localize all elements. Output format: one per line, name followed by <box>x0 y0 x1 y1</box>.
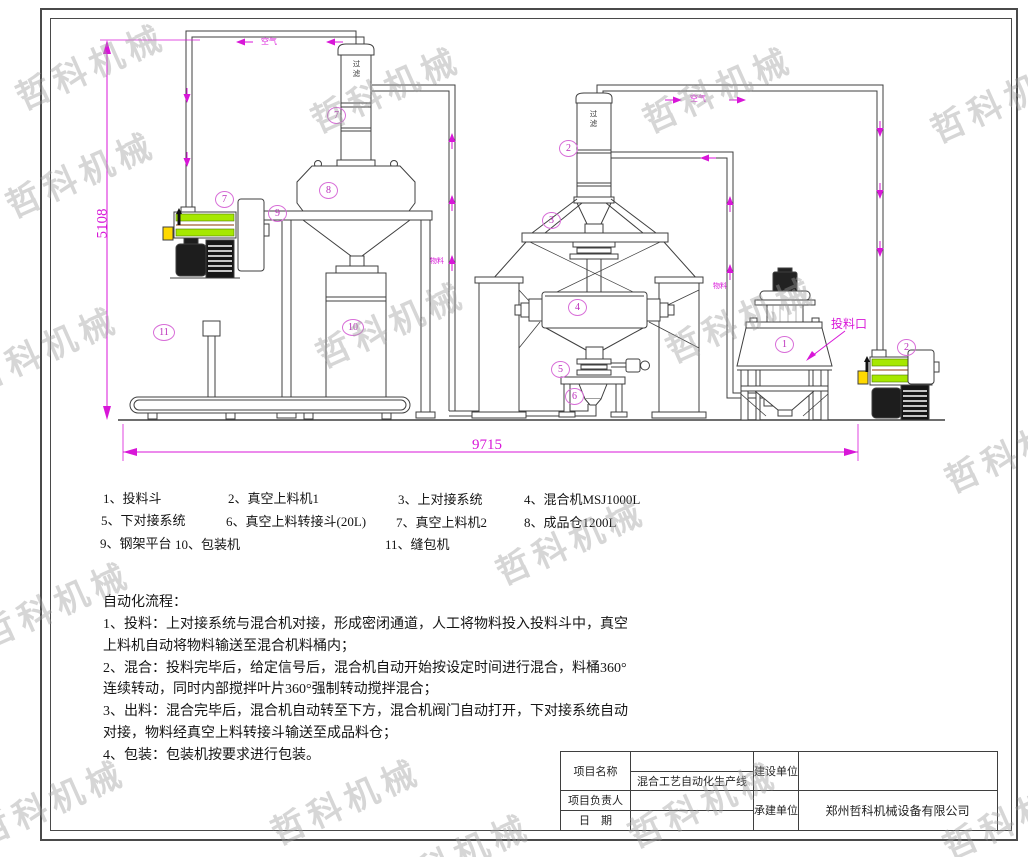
builder-label: 建设单位 <box>754 752 798 790</box>
lower-docking <box>577 359 650 375</box>
legend-item-2: 2、真空上料机1 <box>228 488 319 507</box>
date-value <box>630 810 754 830</box>
project-manager-value <box>630 790 754 810</box>
drawing-sheet: 哲科机械 哲科机械 哲科机械 哲科机械 哲科机械 哲科机械 哲科机械 哲科机械 … <box>0 0 1028 857</box>
project-name-value: 混合工艺自动化生产线 <box>630 771 754 790</box>
legend-item-1: 1、投料斗 <box>103 488 162 507</box>
finished-bin <box>297 161 415 212</box>
filter-label-middle: 过滤 <box>588 110 599 129</box>
process-title: 自动化流程： <box>103 591 187 611</box>
dimension-height: 5108 <box>95 209 112 239</box>
contractor-value: 郑州哲科机械设备有限公司 <box>798 790 997 830</box>
callout-2-vacuum-feeder-1: 2 <box>559 140 578 157</box>
vacuum-feeder-2-blower <box>163 199 269 278</box>
callout-1-feed-hopper: 1 <box>775 336 794 353</box>
project-name-label: 项目名称 <box>561 752 630 790</box>
legend-item-9: 9、钢架平台 <box>100 533 172 552</box>
vacuum-feeder-1-blower <box>858 350 939 420</box>
sewing-machine <box>203 321 220 398</box>
project-manager-label: 项目负责人 <box>561 790 630 810</box>
air-flow-label-left: 空气 <box>261 36 277 47</box>
packaging-machine <box>326 266 386 412</box>
process-line-2: 上料机自动将物料输送至混合机料桶内； <box>103 635 355 655</box>
process-line-3: 2、混合：投料完毕后，给定信号后，混合机自动开始按设定时间进行混合，料桶360° <box>103 657 627 677</box>
process-line-4: 连续转动，同时内部搅拌叶片360°强制转动搅拌混合； <box>103 678 438 698</box>
callout-7-vacuum-feeder-2: 7 <box>327 107 346 124</box>
callout-2-vacuum-feeder-1b: 2 <box>897 339 916 356</box>
legend-item-8: 8、成品仓1200L <box>524 512 616 531</box>
callout-3-upper-docking: 3 <box>542 212 561 229</box>
air-flow-label-right: 空气 <box>690 93 706 104</box>
legend-item-4: 4、混合机MSJ1000L <box>524 489 640 508</box>
legend-item-11: 11、缝包机 <box>385 534 450 553</box>
callout-4-mixer: 4 <box>568 299 587 316</box>
title-block: 项目名称 混合工艺自动化生产线 项目负责人 日 期 建设单位 承建单位 郑州哲科… <box>560 751 998 831</box>
callout-10-packaging: 10 <box>342 319 364 336</box>
legend-item-5: 5、下对接系统 <box>101 510 186 529</box>
legend-item-3: 3、上对接系统 <box>398 489 483 508</box>
legend-item-7: 7、真空上料机2 <box>396 512 487 531</box>
filter-label-left: 过滤 <box>351 60 362 79</box>
callout-7-vacuum-feeder-2b: 7 <box>215 191 234 208</box>
legend-item-6: 6、真空上料转接斗(20L) <box>226 511 366 530</box>
callout-5-lower-docking: 5 <box>551 361 570 378</box>
feed-port-label: 投料口 <box>831 315 867 332</box>
legend-item-10: 10、包装机 <box>175 534 240 553</box>
material-flow-label-left: 物料 <box>430 256 444 266</box>
mixer-drum <box>515 292 674 359</box>
process-line-5: 3、出料：混合完毕后，混合机自动转至下方，混合机阀门自动打开，下对接系统自动 <box>103 700 628 720</box>
process-line-7: 4、包装：包装机按要求进行包装。 <box>103 744 320 764</box>
callout-11-bag-sewing: 11 <box>153 324 175 341</box>
material-flow-label-right: 物料 <box>713 281 727 291</box>
callout-8-finished-bin: 8 <box>319 182 338 199</box>
dimension-width: 9715 <box>472 437 502 454</box>
date-label: 日 期 <box>561 810 630 830</box>
callout-9-steel-platform: 9 <box>268 205 287 222</box>
process-line-1: 1、投料：上对接系统与混合机对接，形成密闭通道，人工将物料投入投料斗中，真空 <box>103 613 628 633</box>
process-line-6: 对接，物料经真空上料转接斗输送至成品料仓； <box>103 722 397 742</box>
contractor-label: 承建单位 <box>754 790 798 830</box>
builder-value <box>798 752 997 790</box>
conveyor <box>130 397 410 419</box>
callout-6-transfer-hopper: 6 <box>565 388 584 405</box>
